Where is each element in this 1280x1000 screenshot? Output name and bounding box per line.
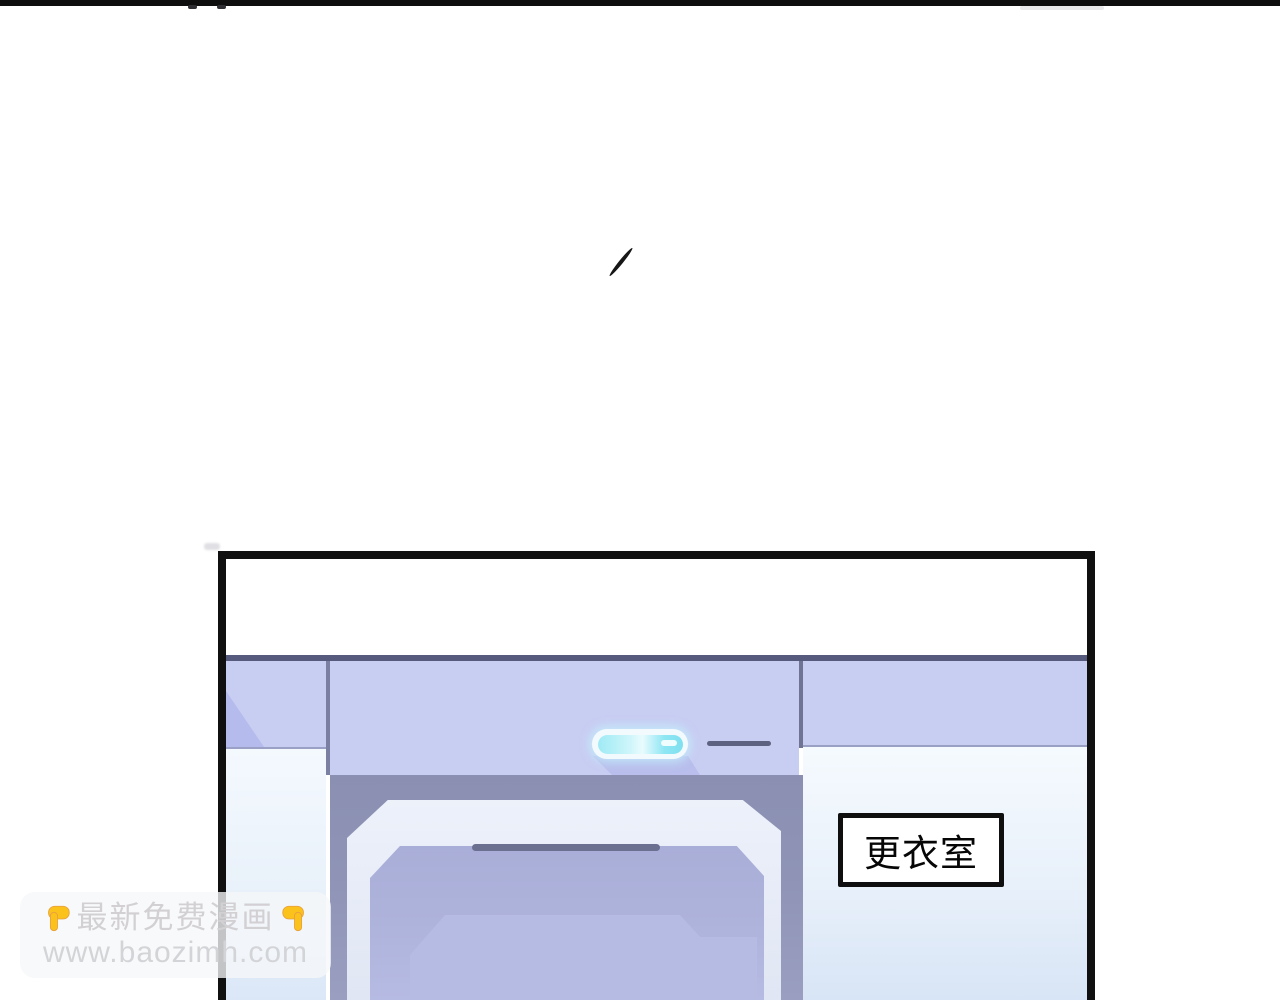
- wall-middle-section: [330, 661, 799, 775]
- ink-smudge: [1020, 6, 1104, 10]
- comic-panel: 更衣室: [218, 551, 1095, 1000]
- panel-artwork: 更衣室: [226, 559, 1087, 1000]
- wall-right-section: [803, 661, 1087, 745]
- ink-speck: [217, 5, 226, 9]
- point-down-icon: [280, 903, 310, 933]
- point-down-icon: [42, 903, 72, 933]
- watermark-title-row: 最新免费漫画: [42, 901, 310, 935]
- sign-label: 更衣室: [864, 823, 978, 877]
- watermark-title: 最新免费漫画: [77, 901, 275, 935]
- lamp-highlight: [661, 740, 677, 746]
- speed-line-mark: [608, 247, 634, 277]
- door-groove: [472, 844, 660, 851]
- comic-page: { "panel": { "sign_label": "更衣室" }, "wat…: [0, 0, 1280, 1000]
- ink-noise: [204, 543, 220, 550]
- panel-top-whitespace: [226, 559, 1087, 655]
- changing-room-sign: 更衣室: [838, 813, 1004, 887]
- wall-vent-dash: [707, 741, 771, 746]
- watermark-url: www.baozimh.com: [43, 936, 308, 969]
- ink-speck: [188, 5, 197, 9]
- watermark-box: 最新免费漫画 www.baozimh.com: [20, 892, 331, 978]
